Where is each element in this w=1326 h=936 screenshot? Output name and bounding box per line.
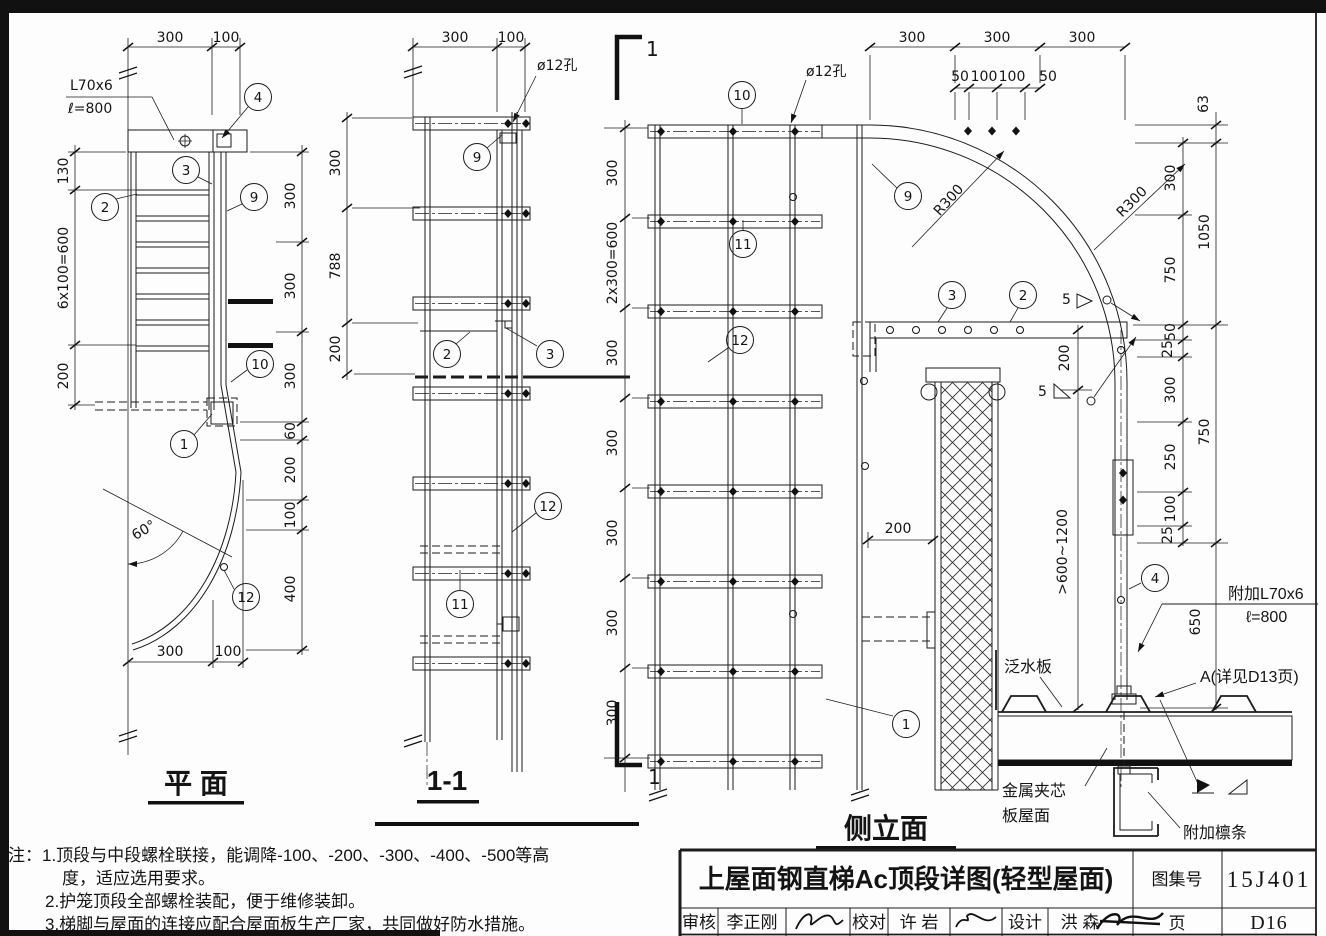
dim-label: 50 [1039,69,1057,85]
svg-text:12: 12 [539,499,556,515]
field-weld-flag [1192,779,1247,794]
dim-label: 300 [283,363,299,390]
svg-text:5: 5 [1062,292,1071,308]
callout-12: 12 [512,493,562,533]
dim-label: 1050 [1197,214,1213,250]
dim-label: 200 [283,457,299,484]
section-cut-label: 1 [648,765,661,789]
detail-a-label: A(详见D13页) [1200,668,1299,686]
svg-text:12: 12 [731,333,748,349]
dim-label: 300 [605,430,621,457]
title-block: 上屋面钢直梯Ac顶段详图(轻型屋面) 图集号 15J401 审核 李正刚 校对 … [680,850,1316,936]
wall [921,368,1005,790]
scan-edge-left [0,0,9,936]
dim-label: >600~1200 [1055,509,1071,595]
dim-label: 300 [605,520,621,547]
plan-view: 300 100 L70x6 ℓ=800 60° 130 6x100=600 20… [56,30,309,805]
svg-text:2: 2 [101,200,110,216]
section-view-title: 1-1 [427,765,467,796]
callout-9: 9 [464,135,503,171]
design-name: 洪 森 [1061,913,1100,932]
angle-degree-label: 60° [129,517,159,543]
dim-label: 300 [328,150,344,177]
svg-text:12: 12 [237,590,254,606]
dim-label: 100 [215,644,242,660]
audit-name: 李正刚 [727,913,778,932]
svg-text:9: 9 [250,190,259,206]
dim-label: 300 [1163,165,1179,192]
callout-11: 11 [447,570,474,618]
dim-label: 200 [885,521,912,537]
svg-text:5: 5 [1038,384,1047,400]
dim-label: 300 [899,30,926,46]
svg-text:9: 9 [904,189,913,205]
callout-10: 10 [231,351,274,383]
dim-label: 63 [1196,95,1212,113]
callout-11: 11 [730,220,757,258]
dim-label: 300 [157,644,184,660]
page-label: 页 [1169,914,1186,933]
svg-text:9: 9 [473,150,482,166]
scan-edge-top [0,0,1326,13]
dim-label: 300 [442,30,469,46]
dim-label: 300 [605,700,621,727]
plan-view-title: 平 面 [164,768,228,799]
dim-label: 200 [328,336,344,363]
notes: 注：1.顶段与中段螺栓联接，能调降-100、-200、-300、-400、-50… [8,846,549,934]
hole-label: ø12孔 [806,64,846,80]
added-angle-label: 附加L70x6 [1228,585,1304,603]
dim-label: 300 [984,30,1011,46]
drawing-canvas: 300 100 L70x6 ℓ=800 60° 130 6x100=600 20… [0,0,1326,936]
dim-label: 60 [283,422,299,440]
dim-label: 2x300=600 [605,222,621,304]
callout-10: 10 [729,82,756,125]
audit-label: 审核 [682,913,716,932]
dim-label: 100 [971,69,998,85]
svg-text:3: 3 [182,163,191,179]
callout-3: 3 [506,328,564,368]
section-cut-mark-top [617,37,642,100]
svg-text:2: 2 [443,347,452,363]
callout-12: 12 [224,570,260,611]
signature-proof [956,914,996,927]
roof-label-line1: 金属夹芯 [1002,782,1066,800]
roof-label-line2: 板屋面 [1002,807,1050,825]
callout-1: 1 [171,414,213,458]
dim-label: 750 [1163,257,1179,284]
dim-label: 100 [283,502,299,529]
callout-2: 2 [1010,282,1037,323]
added-angle-length: ℓ=800 [1246,609,1287,626]
svg-text:3: 3 [948,288,957,304]
page-number: D16 [1250,912,1287,934]
flashing-label: 泛水板 [1004,658,1052,676]
svg-text:10: 10 [251,357,268,373]
dim-label: 300 [157,30,184,46]
dim-label: 130 [56,158,72,185]
purlin-label: 附加檩条 [1183,823,1247,842]
dim-label: 100 [498,30,525,46]
proof-label: 校对 [852,913,886,932]
design-label: 设计 [1008,913,1042,932]
signature-design [1097,913,1163,929]
drawing-title: 上屋面钢直梯Ac顶段详图(轻型屋面) [699,864,1114,894]
dim-label: 200 [1057,345,1073,372]
callout-4: 4 [1129,565,1169,592]
dim-label: 300 [605,340,621,367]
hole-label: ø12孔 [537,58,577,74]
drawing-sheet: 300 100 L70x6 ℓ=800 60° 130 6x100=600 20… [0,0,1326,936]
proof-name: 许 岩 [900,913,939,932]
note-line-1: 注：1.顶段与中段螺栓联接，能调降-100、-200、-300、-400、-50… [8,846,549,865]
weld-symbol: 5 [1062,292,1140,321]
callout-2: 2 [434,332,471,368]
callout-9: 9 [227,184,268,212]
elevation-view-title: 侧立面 [844,812,928,844]
dim-label: 300 [1069,30,1096,46]
angle-spec-label: L70x6 [70,78,113,94]
svg-text:3: 3 [546,347,555,363]
note-line-4: 3.梯脚与屋面的连接应配合屋面板生产厂家，共同做好防水措施。 [45,915,535,934]
dim-label: 400 [283,576,299,603]
section-view: 300 100 ø12孔 300 788 200 9 2 3 12 11 1-1 [328,30,630,804]
callout-12: 12 [708,327,754,363]
elevation-view: 1 1 ø12孔 10 R300 R300 9 300 300 300 50 1… [604,30,1318,850]
purlin [1114,768,1158,836]
dim-label: 788 [328,253,344,280]
dim-label: 250 [1163,444,1179,471]
dim-label: 300 [283,183,299,210]
atlas-number: 15J401 [1227,867,1311,892]
svg-text:1: 1 [180,437,189,453]
svg-text:11: 11 [734,237,751,253]
callout-9: 9 [872,164,922,210]
atlas-number-label: 图集号 [1152,870,1203,889]
dim-label: 25 [1160,526,1176,544]
svg-text:11: 11 [451,597,468,613]
dim-label: 100 [213,30,240,46]
dim-label: 100 [1163,496,1179,523]
svg-text:4: 4 [1151,571,1160,587]
callout-3: 3 [938,282,966,323]
callout-1: 1 [826,699,920,738]
angle-length-label: ℓ=800 [67,101,112,117]
separator-line [375,822,639,826]
dim-label: 650 [1188,609,1204,636]
dim-label: 50 [951,69,969,85]
dim-label: 25 [1160,340,1176,358]
section-cut-label: 1 [646,37,659,61]
svg-text:10: 10 [733,88,750,104]
callout-2: 2 [92,194,138,221]
dim-label: 300 [605,610,621,637]
dim-label: 750 [1197,419,1213,446]
dim-label: 300 [605,160,621,187]
dim-label: 300 [1163,377,1179,404]
svg-text:1: 1 [902,717,911,733]
dim-label: 50 [1163,323,1179,341]
signature-audit [796,914,843,929]
radius-label: R300 [931,181,967,219]
callout-3: 3 [173,157,213,185]
dim-label: 100 [999,69,1026,85]
note-line-3: 2.护笼顶段全部螺栓装配，便于维修装卸。 [45,892,365,911]
dim-label: 200 [56,363,72,390]
svg-text:2: 2 [1019,288,1028,304]
note-line-2: 度，适应选用要求。 [62,869,215,888]
svg-text:4: 4 [254,90,263,106]
dim-label: 6x100=600 [56,227,72,309]
dim-label: 300 [283,273,299,300]
